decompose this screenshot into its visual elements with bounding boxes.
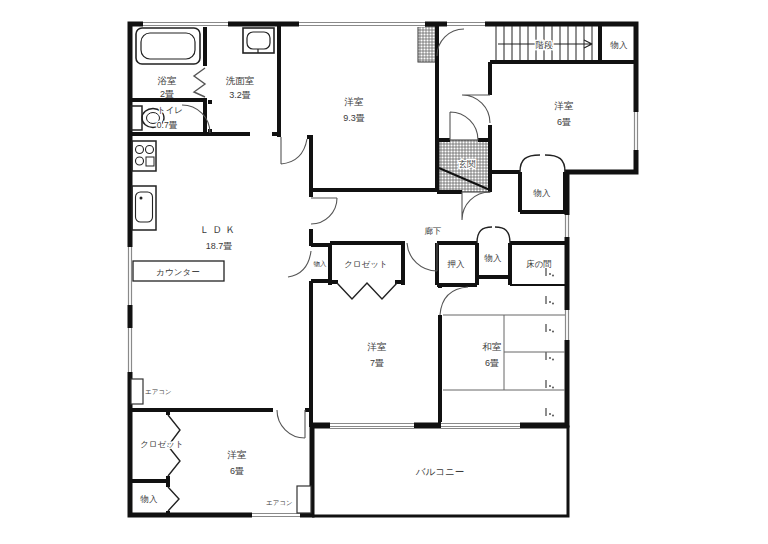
window-hall-top: [447, 21, 485, 27]
room-label-toilet: トイレ: [157, 105, 183, 115]
room-size-western-sw: 6畳: [230, 466, 244, 476]
aircon-label-2: エアコン: [266, 499, 293, 506]
aircon-unit-icon-2: [297, 486, 311, 513]
floor-plan-drawing: 浴室 2畳 洗面室 3.2畳 トイレ 0.7畳 洋室 9.3畳 洋室 6畳 ＬＤ…: [0, 0, 768, 544]
aircon-unit-icon-1: [131, 379, 143, 404]
window-western-ne-right: [633, 112, 639, 150]
closet-sw-label: クロゼット: [140, 439, 184, 449]
room-label-hallway: 廊下: [425, 226, 442, 236]
storage-small-label: 物入: [314, 260, 328, 268]
storage-sw-label: 物入: [140, 494, 159, 504]
room-size-bathroom: 2畳: [160, 89, 174, 99]
window-corridor-right: [564, 215, 570, 237]
room-label-balcony: バルコニー: [415, 466, 464, 477]
sliding-door-western-center: [330, 422, 414, 428]
room-size-ldk: 18.7畳: [206, 241, 233, 251]
room-size-western-center: 7畳: [370, 358, 384, 368]
stair-void-hatch: [418, 26, 437, 62]
room-label-stairs: 階段: [536, 40, 554, 50]
storage-corridor-label: 物入: [484, 253, 503, 263]
window-western-north-top: [299, 21, 425, 27]
storage-top-right-label: 物入: [610, 40, 629, 50]
window-ldk-left-2: [127, 328, 133, 372]
room-label-western-sw: 洋室: [227, 449, 247, 460]
sliding-door-japanese: [441, 422, 520, 428]
floor-plan-page: 浴室 2畳 洗面室 3.2畳 トイレ 0.7畳 洋室 9.3畳 洋室 6畳 ＬＤ…: [0, 0, 768, 544]
closet-mid-label: クロゼット: [344, 259, 388, 269]
room-label-washroom: 洗面室: [226, 75, 255, 86]
room-label-entrance: 玄関: [459, 159, 476, 169]
room-size-toilet: 0.7畳: [157, 120, 178, 130]
room-label-western-center: 洋室: [367, 341, 387, 352]
oshiire-label: 押入: [447, 259, 466, 269]
window-western-sw-bottom: [252, 512, 300, 518]
room-size-western-north: 9.3畳: [343, 113, 365, 123]
room-size-japanese-room: 6畳: [485, 358, 499, 368]
room-label-japanese-room: 和室: [482, 341, 502, 352]
room-label-western-ne: 洋室: [554, 100, 574, 111]
room-size-western-ne: 6畳: [557, 117, 571, 127]
window-bath-top: [143, 21, 228, 27]
storage-ne-label: 物入: [533, 188, 552, 198]
room-label-western-north: 洋室: [344, 96, 364, 107]
tokonoma-label: 床の間: [526, 259, 552, 269]
window-ldk-left-1: [127, 247, 133, 305]
aircon-label-1: エアコン: [145, 388, 172, 395]
counter-label: カウンター: [156, 267, 199, 277]
room-size-washroom: 3.2畳: [229, 90, 251, 100]
room-label-bathroom: 浴室: [158, 75, 177, 86]
room-label-ldk: ＬＤＫ: [200, 224, 239, 235]
